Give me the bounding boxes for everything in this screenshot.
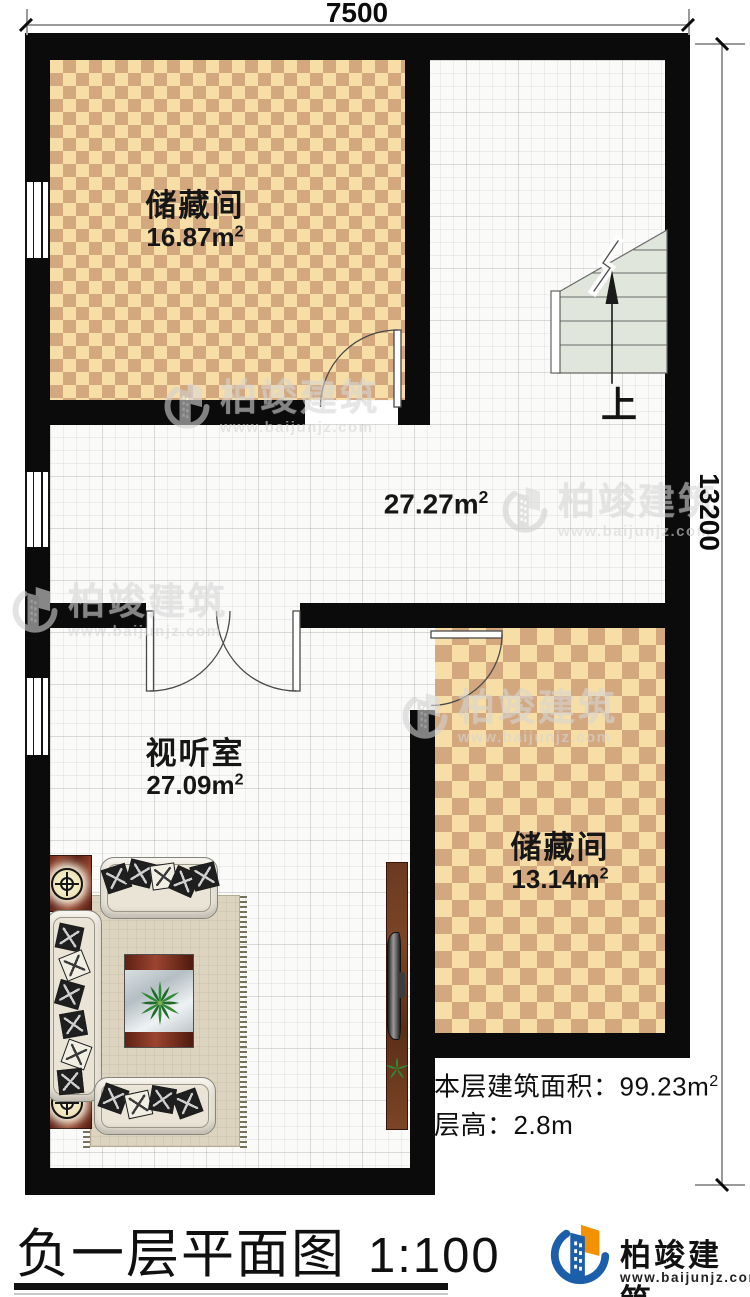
room-name: 视听室 — [105, 738, 285, 771]
wall-storage-top-corner — [398, 400, 430, 425]
wall-storage-right-bottom — [410, 1033, 690, 1058]
title-scale: 1:100 — [368, 1228, 501, 1284]
dimension-width-label: 7500 — [287, 0, 427, 29]
wall-top — [25, 33, 690, 60]
info-block: 本层建筑面积：99.23m2 层高：2.8m — [434, 1062, 744, 1144]
room-name: 储藏间 — [470, 832, 650, 865]
plant-icon — [136, 979, 184, 1027]
stairs-up-label: 上 — [597, 376, 641, 428]
window — [25, 472, 50, 547]
wall-hall-av-right — [300, 603, 690, 628]
title-text: 负一层平面图 — [16, 1212, 346, 1288]
room-area: 27.09m2 — [105, 771, 285, 800]
plant-small-icon — [384, 1056, 410, 1082]
title-underline — [14, 1283, 448, 1290]
floor-plan-page: 柏竣建筑 www.baijunjz.com 柏竣建筑 www.baijunjz.… — [0, 0, 750, 1297]
brand-name: 柏竣建筑 — [620, 1230, 750, 1297]
pillow — [59, 1010, 88, 1039]
room-label-storage-top: 储藏间 16.87m2 — [95, 190, 295, 251]
dimension-line-right — [721, 43, 723, 1185]
brand-logo-icon — [545, 1221, 615, 1291]
room-area: 27.27m2 — [356, 488, 516, 520]
window — [25, 678, 50, 755]
brand-url: www.baijunjz.com — [620, 1270, 750, 1285]
floor-area-line: 本层建筑面积：99.23m2 — [434, 1062, 744, 1106]
coffee-table — [124, 954, 194, 1048]
pillow — [57, 1068, 84, 1095]
drawing-title: 负一层平面图 1:100 — [16, 1212, 501, 1288]
wall-av-right — [410, 710, 435, 1195]
floor-height-line: 层高：2.8m — [434, 1106, 744, 1144]
room-label-av: 视听室 27.09m2 — [105, 738, 285, 799]
dimension-height-label: 13200 — [695, 452, 723, 572]
room-label-storage-right: 储藏间 13.14m2 — [470, 832, 650, 893]
wall-storage-top-right — [405, 60, 430, 425]
wall-bottom — [25, 1168, 435, 1195]
wall-right — [665, 33, 690, 1058]
wall-hall-av-left — [25, 603, 146, 628]
wall-storage-top-bottom — [25, 400, 305, 425]
window — [25, 182, 50, 258]
room-label-hall: 27.27m2 — [356, 488, 516, 520]
room-area: 13.14m2 — [470, 865, 650, 894]
pillow — [55, 923, 85, 953]
tv-stand — [398, 972, 405, 998]
table-lamp-icon — [51, 868, 83, 900]
title-underline-thin — [14, 1293, 448, 1295]
room-name: 储藏间 — [95, 190, 295, 223]
room-area: 16.87m2 — [95, 223, 295, 252]
